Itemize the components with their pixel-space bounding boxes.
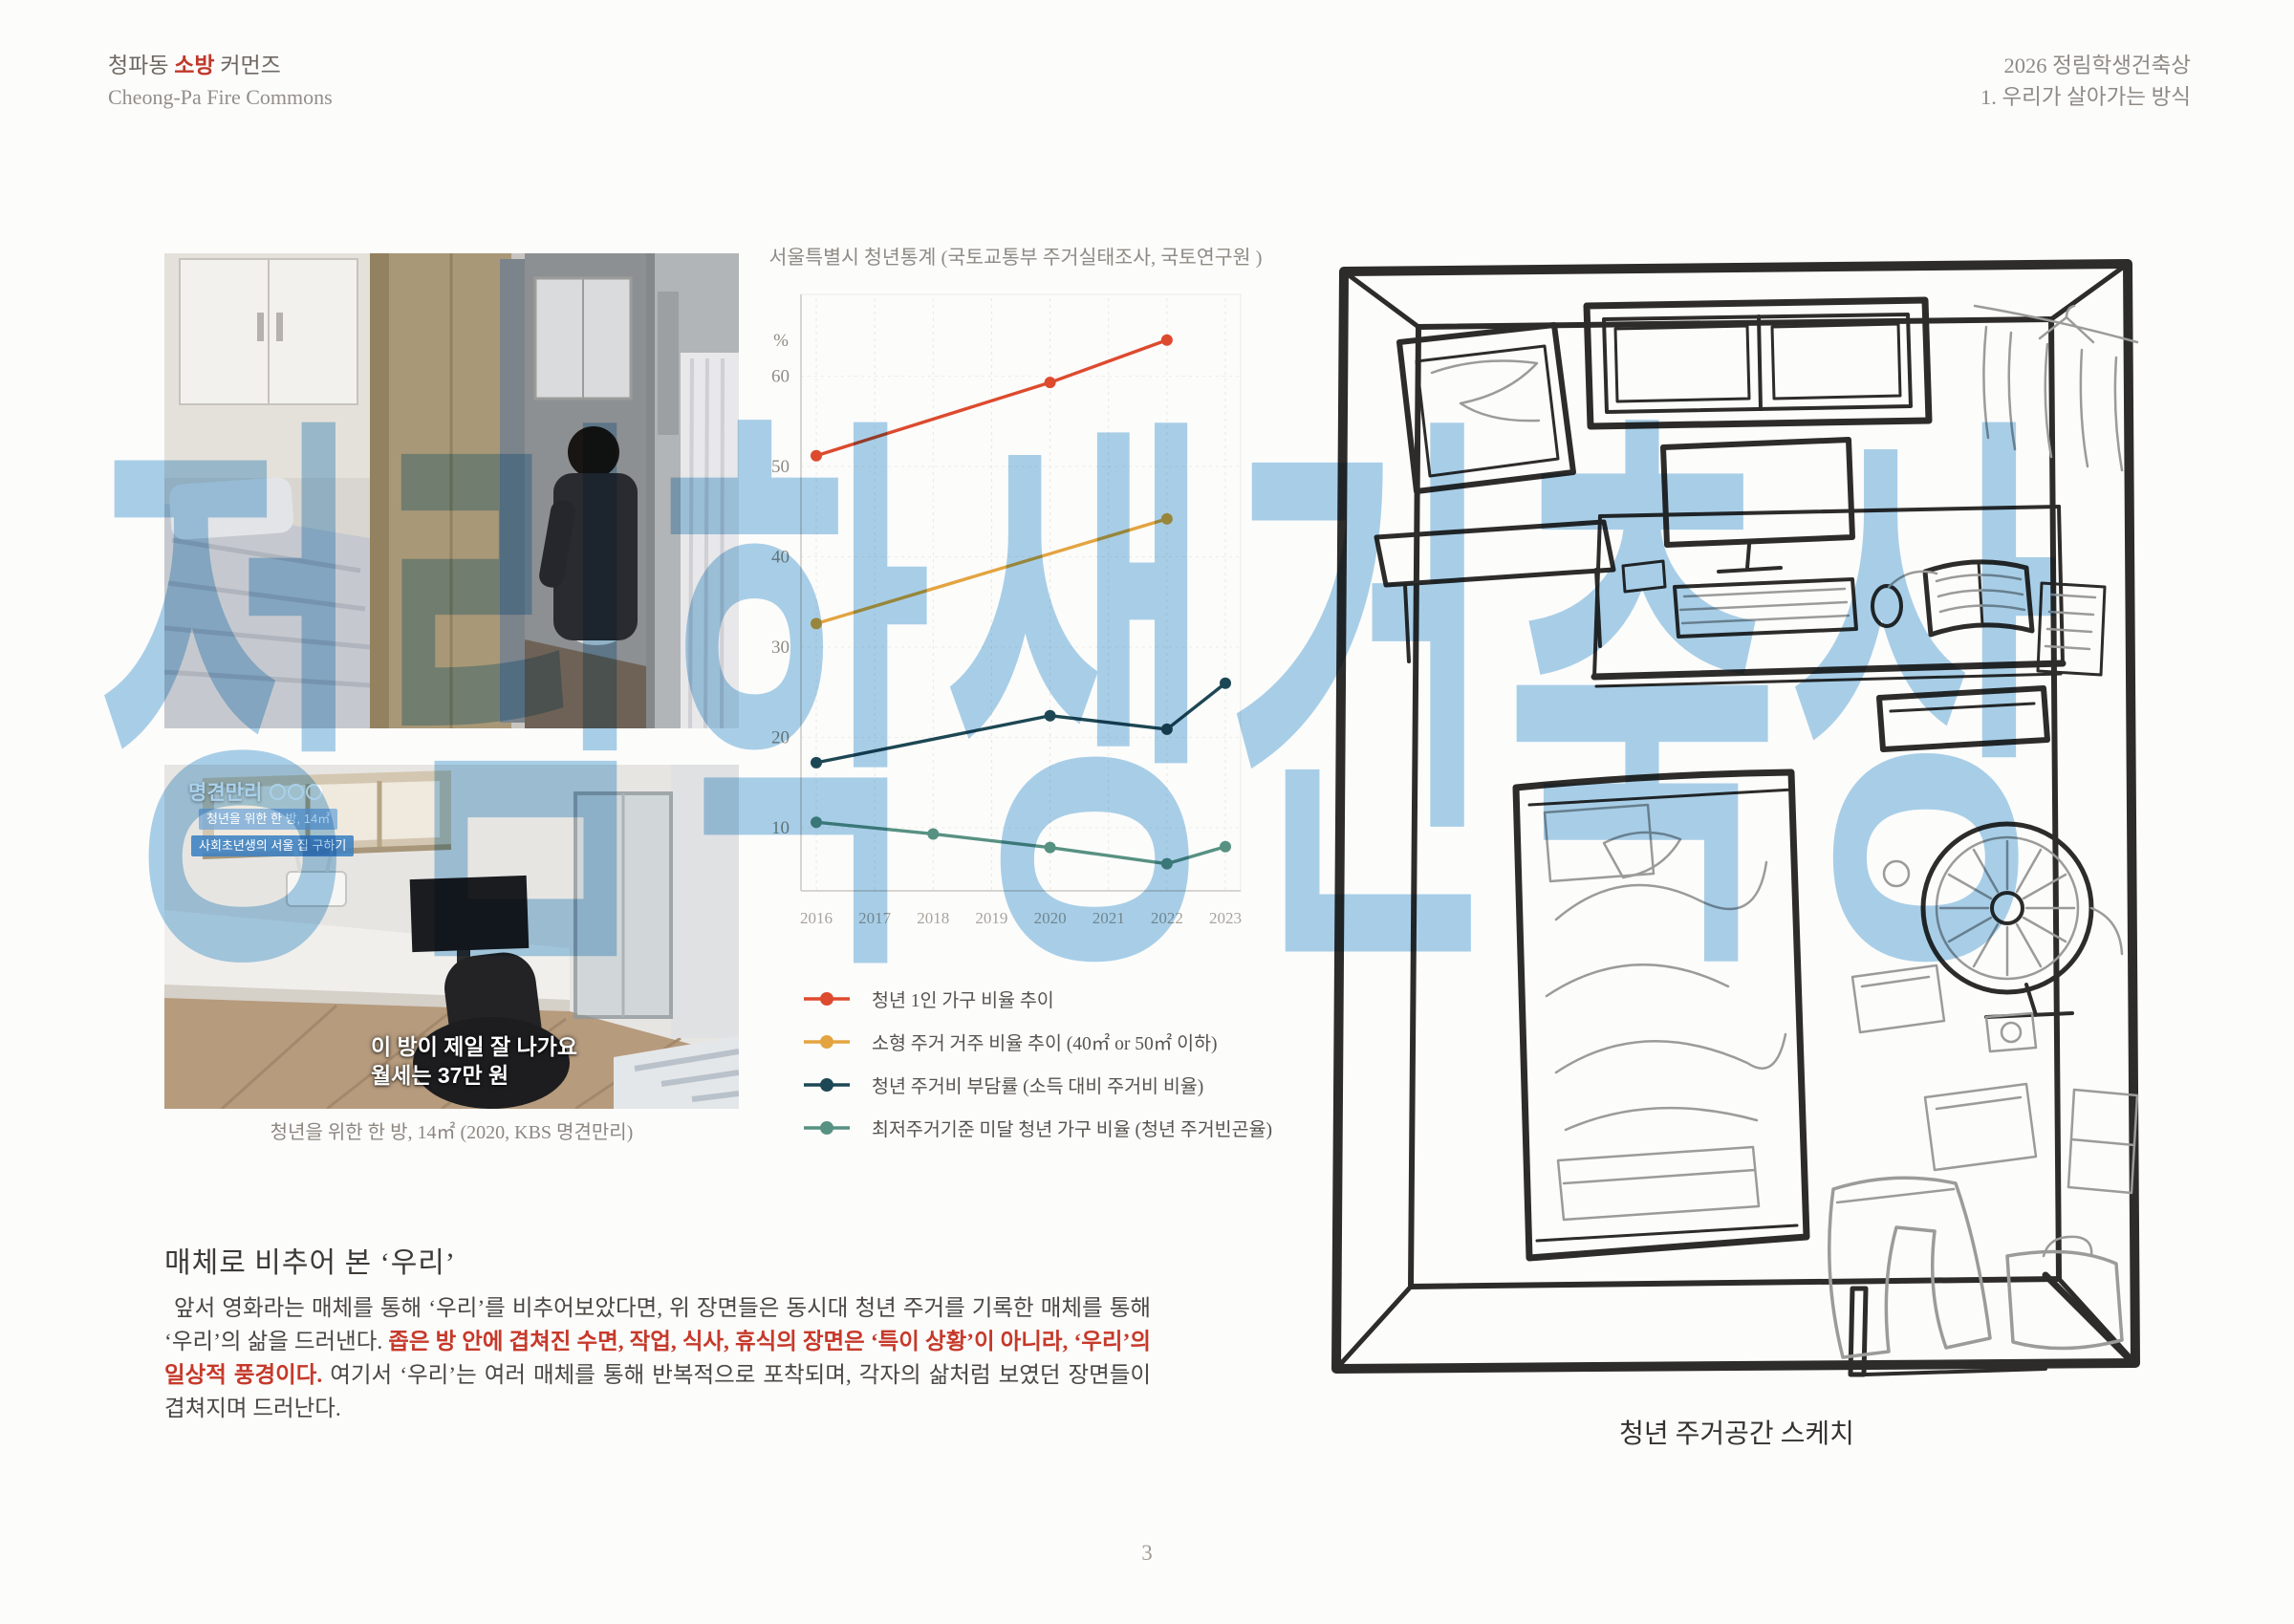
room-sketch-drawing xyxy=(1317,250,2156,1378)
tv-program-logo: 명견만리 xyxy=(188,777,322,806)
svg-text:2017: 2017 xyxy=(858,909,892,927)
tv-caption-line1: 청년을 위한 한 방, 14㎡ xyxy=(199,809,337,830)
svg-text:2020: 2020 xyxy=(1034,909,1067,927)
legend-item: 소형 주거 거주 비율 추이 (40㎡ or 50㎡ 이하) xyxy=(801,1020,1272,1063)
legend-label: 최저주거기준 미달 청년 가구 비율 (청년 주거빈곤율) xyxy=(872,1114,1272,1141)
project-title-en: Cheong-Pa Fire Commons xyxy=(108,81,333,113)
svg-text:10: 10 xyxy=(771,818,790,838)
legend-item: 청년 1인 가구 비율 추이 xyxy=(801,977,1272,1020)
legend-marker-icon xyxy=(801,1034,853,1050)
room-sketch xyxy=(1317,250,2156,1378)
competition-chapter: 1. 우리가 살아가는 방식 xyxy=(1980,81,2191,113)
svg-text:2022: 2022 xyxy=(1151,909,1183,927)
legend-label: 청년 주거비 부담률 (소득 대비 주거비 비율) xyxy=(872,1071,1203,1098)
project-title: 청파동 소방 커먼즈 xyxy=(108,50,333,81)
competition-title: 2026 정림학생건축상 xyxy=(1980,50,2191,81)
svg-text:2021: 2021 xyxy=(1093,909,1125,927)
legend-marker-icon xyxy=(801,1077,853,1093)
legend-marker-icon xyxy=(801,991,853,1007)
chart-legend: 청년 1인 가구 비율 추이소형 주거 거주 비율 추이 (40㎡ or 50㎡… xyxy=(801,977,1272,1149)
photo-room-1 xyxy=(164,253,739,728)
tv-subtitle: 이 방이 제일 잘 나가요 월세는 37만 원 xyxy=(371,1032,577,1090)
svg-text:2016: 2016 xyxy=(800,909,833,927)
chart-title: 서울특별시 청년통계 (국토교통부 주거실태조사, 국토연구원 ) xyxy=(765,241,1266,270)
svg-text:30: 30 xyxy=(771,638,790,658)
section-heading: 매체로 비추어 본 ‘우리’ xyxy=(164,1239,456,1281)
svg-text:60: 60 xyxy=(771,367,790,387)
page-number: 3 xyxy=(0,1541,2294,1566)
photo-caption: 청년을 위한 한 방, 14㎡ (2020, KBS 명견만리) xyxy=(164,1116,739,1144)
document-page: 청파동 소방 커먼즈 Cheong-Pa Fire Commons 2026 정… xyxy=(0,0,2294,1624)
photo-room-2: 명견만리 청년을 위한 한 방, 14㎡ 사회초년생의 서울 집 구하기 이 방… xyxy=(164,765,739,1109)
project-title-accent: 소방 xyxy=(174,54,214,77)
svg-text:2023: 2023 xyxy=(1209,909,1242,927)
tv-caption-line2: 사회초년생의 서울 집 구하기 xyxy=(191,835,354,856)
line-chart: 102030405060%201620172018201920202021202… xyxy=(757,275,1254,944)
header-right: 2026 정림학생건축상 1. 우리가 살아가는 방식 xyxy=(1980,50,2191,113)
svg-text:20: 20 xyxy=(771,727,790,747)
svg-text:40: 40 xyxy=(771,547,790,567)
svg-text:%: % xyxy=(773,331,789,351)
legend-item: 최저주거기준 미달 청년 가구 비율 (청년 주거빈곤율) xyxy=(801,1106,1272,1149)
svg-text:50: 50 xyxy=(771,457,790,477)
svg-text:2018: 2018 xyxy=(917,909,949,927)
legend-label: 소형 주거 거주 비율 추이 (40㎡ or 50㎡ 이하) xyxy=(872,1028,1218,1055)
legend-item: 청년 주거비 부담률 (소득 대비 주거비 비율) xyxy=(801,1063,1272,1106)
legend-marker-icon xyxy=(801,1120,853,1136)
photo-room-1-image xyxy=(164,253,739,728)
header-left: 청파동 소방 커먼즈 Cheong-Pa Fire Commons xyxy=(108,50,333,113)
sketch-caption: 청년 주거공간 스케치 xyxy=(1317,1413,2156,1451)
body-paragraph: 앞서 영화라는 매체를 통해 ‘우리’를 비추어보았다면, 위 장면들은 동시대… xyxy=(164,1292,1151,1426)
tv-program-logo-mark-icon xyxy=(270,784,322,800)
svg-text:2019: 2019 xyxy=(975,909,1007,927)
legend-label: 청년 1인 가구 비율 추이 xyxy=(872,985,1054,1012)
